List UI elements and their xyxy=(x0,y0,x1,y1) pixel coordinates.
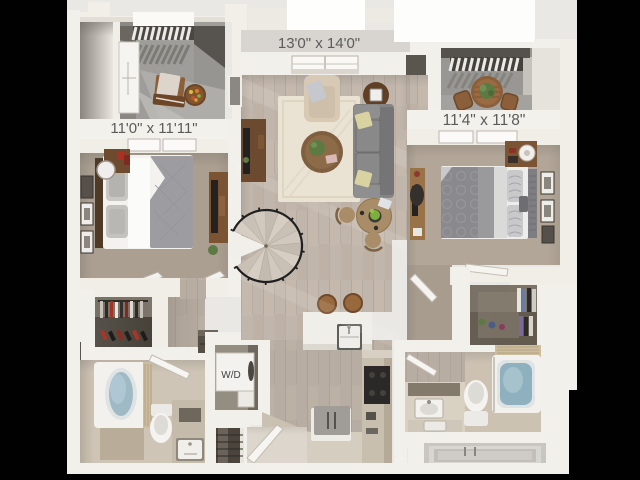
svg-text:13'0" x 14'0": 13'0" x 14'0" xyxy=(278,35,360,52)
svg-text:11'4" x 11'8": 11'4" x 11'8" xyxy=(443,112,526,129)
svg-text:11'0" x 11'11": 11'0" x 11'11" xyxy=(110,120,197,137)
svg-text:W/D: W/D xyxy=(221,370,240,381)
